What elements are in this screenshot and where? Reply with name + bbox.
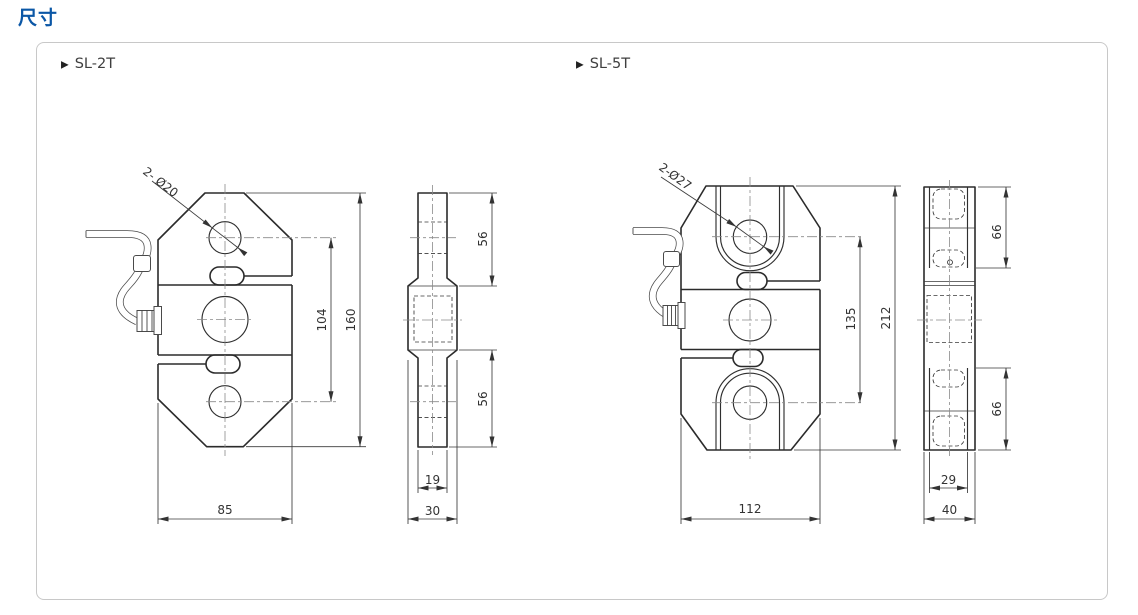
sl2t-dim-thickness: 30 (425, 504, 440, 518)
dimensions-page: 尺寸 ▶ SL-2T ▶ SL-5T (0, 0, 1138, 615)
sl2t-dim-upper-end: 56 (476, 231, 490, 246)
sl2t-dim-width: 85 (217, 503, 232, 517)
sl2t-front-view: 104 160 85 2- Ø20 (86, 164, 366, 524)
sl5t-front-view: 135 212 112 2-Ø27 (633, 160, 901, 524)
sl2t-dim-lower-end: 56 (476, 391, 490, 406)
sl5t-dim-thickness: 40 (942, 503, 957, 517)
sl5t-dim-overall-height: 212 (879, 307, 893, 330)
cable-clip (664, 252, 680, 267)
sl2t-dim-inner-height: 104 (315, 309, 329, 332)
sl5t-dim-hole: 2-Ø27 (656, 160, 694, 193)
sl5t-dimensions: 135 212 112 2-Ø27 (656, 160, 901, 524)
sl2t-side-dimensions: 56 56 19 30 (408, 193, 497, 524)
sl5t-dim-inner-height: 135 (844, 308, 858, 331)
sl5t-dim-end-width: 29 (941, 473, 956, 487)
sl5t-dim-lower-end: 66 (990, 401, 1004, 416)
sl5t-dim-upper-end: 66 (990, 224, 1004, 239)
sl2t-dim-overall-height: 160 (344, 309, 358, 332)
sl5t-dim-width: 112 (739, 502, 762, 516)
cable-gland (663, 303, 685, 329)
cable-clip (134, 256, 151, 272)
sl2t-cable (86, 231, 162, 335)
sl2t-dim-hole: 2- Ø20 (140, 164, 181, 200)
sl2t-dim-end-width: 19 (425, 473, 440, 487)
dimensions-panel: ▶ SL-2T ▶ SL-5T (36, 42, 1108, 600)
sl5t-side-view: 66 66 29 40 (917, 180, 1011, 524)
technical-drawing-canvas: 104 160 85 2- Ø20 (37, 43, 1105, 597)
page-title: 尺寸 (18, 3, 58, 30)
sl2t-dimensions: 104 160 85 2- Ø20 (140, 164, 366, 524)
sl5t-cable (633, 228, 685, 329)
cable-gland (137, 307, 162, 335)
sl2t-side-view: 56 56 19 30 (403, 185, 497, 524)
